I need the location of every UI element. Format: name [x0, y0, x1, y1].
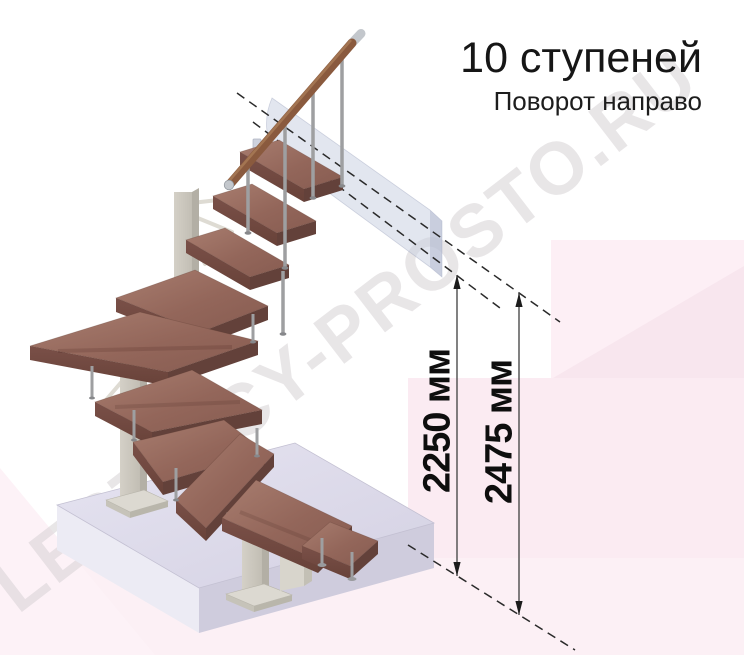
page-subtitle: Поворот направо: [494, 88, 702, 115]
post-base: [318, 563, 327, 567]
dimension-label-2250: 2250 мм: [417, 349, 460, 493]
wall-panel-end-cap: [430, 210, 442, 277]
dimension-label-2475: 2475 мм: [479, 360, 522, 504]
handrail-bottom-cap: [224, 180, 234, 190]
post-base: [348, 577, 357, 581]
page-title: 10 ступеней: [460, 36, 702, 81]
diagram-canvas: LESTNICY-PROSTO.RU: [0, 0, 744, 655]
